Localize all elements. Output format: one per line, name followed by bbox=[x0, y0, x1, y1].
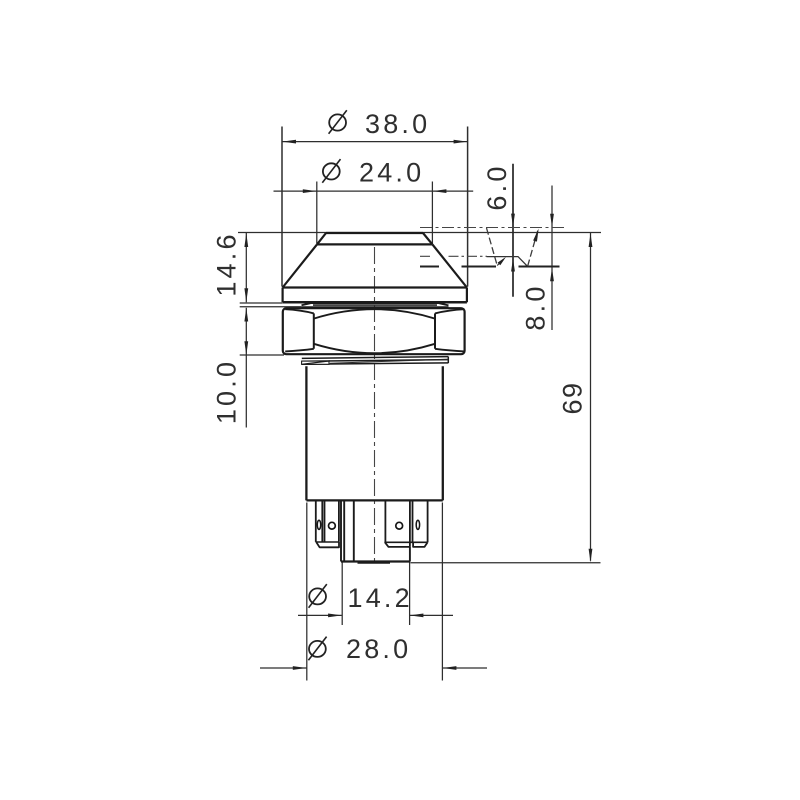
svg-text:14.6: 14.6 bbox=[212, 231, 242, 296]
svg-text:24.0: 24.0 bbox=[359, 157, 424, 187]
svg-text:28.0: 28.0 bbox=[346, 634, 411, 664]
svg-text:8.0: 8.0 bbox=[520, 283, 550, 330]
svg-text:69: 69 bbox=[557, 381, 587, 414]
svg-text:6.0: 6.0 bbox=[482, 163, 512, 210]
svg-text:14.2: 14.2 bbox=[348, 583, 413, 613]
svg-text:10.0: 10.0 bbox=[212, 359, 242, 424]
svg-text:38.0: 38.0 bbox=[365, 109, 430, 139]
